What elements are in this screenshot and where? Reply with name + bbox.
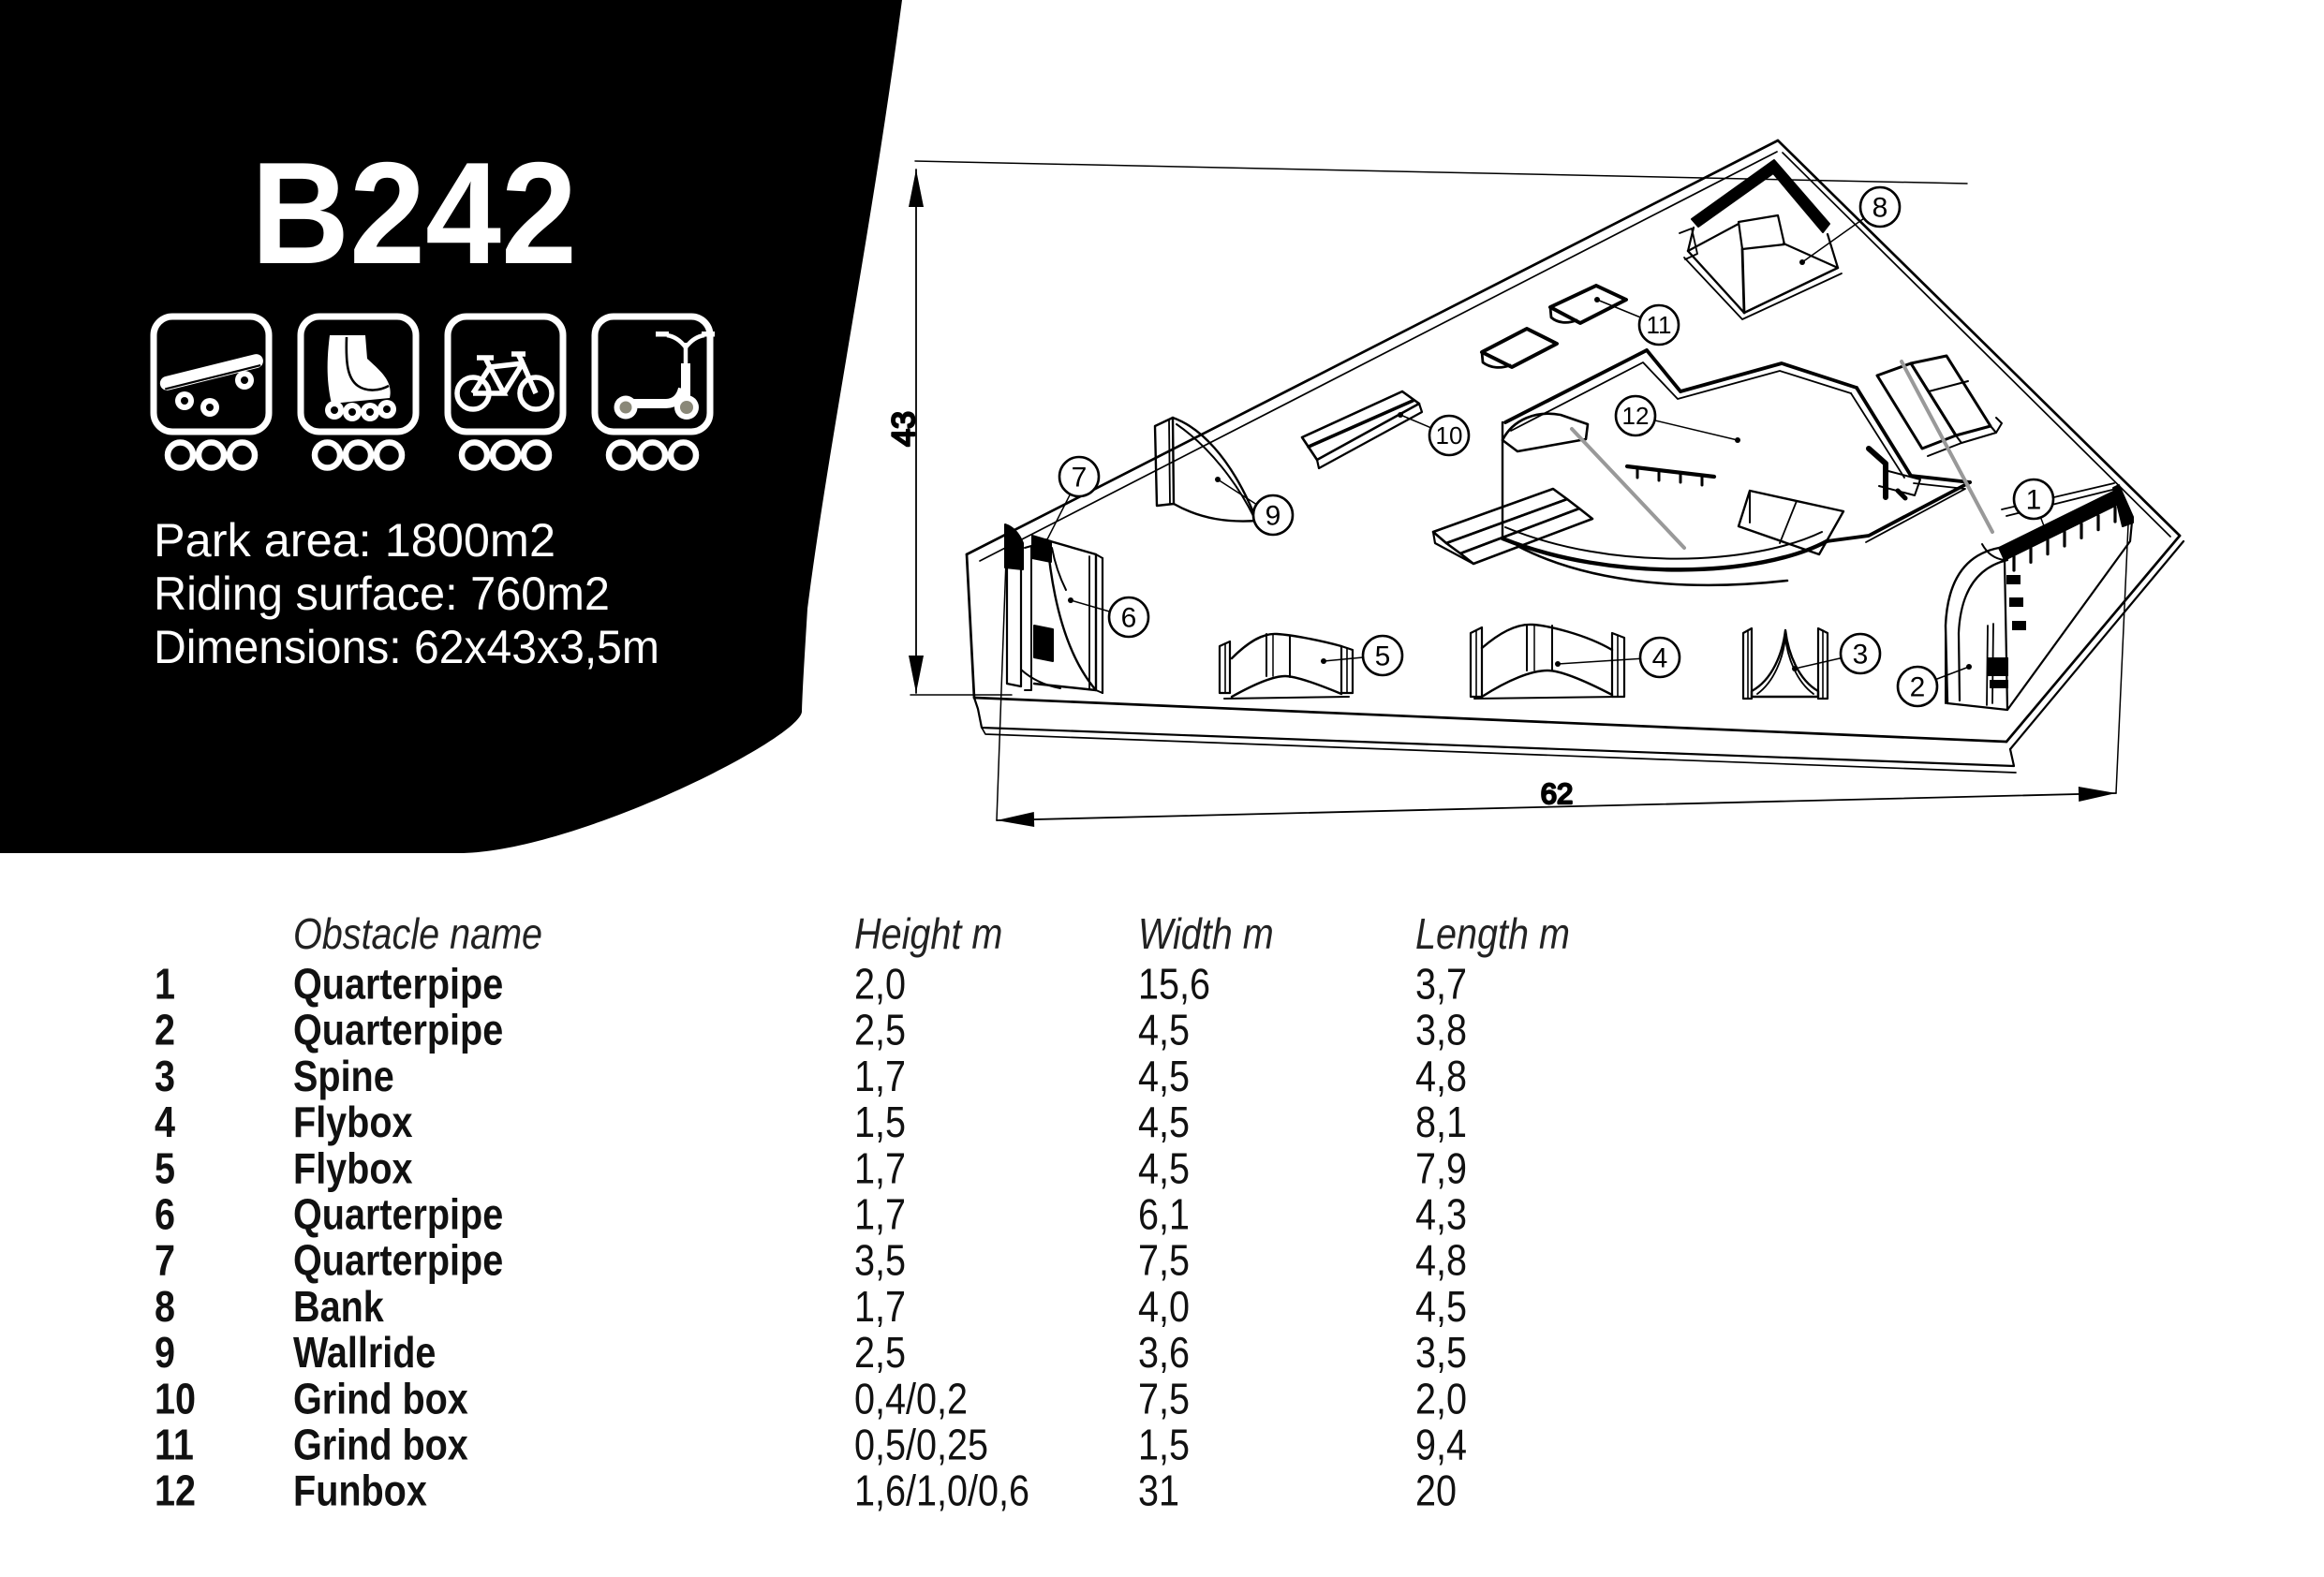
svg-text:Park area: 1800m2: Park area: 1800m2: [154, 514, 555, 567]
svg-text:4: 4: [155, 1098, 175, 1146]
svg-text:Grind box: Grind box: [293, 1422, 468, 1469]
svg-text:6,1: 6,1: [1138, 1191, 1190, 1239]
svg-text:4,8: 4,8: [1415, 1053, 1467, 1100]
svg-text:3,6: 3,6: [1138, 1329, 1190, 1377]
svg-text:1,7: 1,7: [854, 1145, 906, 1193]
svg-text:3,8: 3,8: [1415, 1007, 1467, 1054]
svg-text:4,5: 4,5: [1415, 1283, 1467, 1331]
svg-text:9: 9: [1266, 501, 1281, 532]
svg-text:7,9: 7,9: [1415, 1145, 1467, 1193]
svg-text:7,5: 7,5: [1138, 1237, 1190, 1285]
svg-text:2,0: 2,0: [854, 961, 906, 1009]
svg-text:20: 20: [1415, 1467, 1457, 1515]
svg-text:2,5: 2,5: [854, 1007, 906, 1054]
svg-text:4,5: 4,5: [1138, 1145, 1190, 1193]
svg-text:15,6: 15,6: [1138, 961, 1210, 1009]
svg-text:9: 9: [155, 1329, 175, 1377]
svg-text:Flybox: Flybox: [293, 1145, 413, 1193]
svg-text:5: 5: [1375, 641, 1391, 672]
svg-text:Dimensions: 62x43x3,5m: Dimensions: 62x43x3,5m: [154, 621, 659, 673]
svg-text:8: 8: [155, 1283, 175, 1331]
svg-text:1,5: 1,5: [854, 1098, 906, 1146]
svg-text:Quarterpipe: Quarterpipe: [293, 1191, 503, 1239]
svg-text:3,5: 3,5: [854, 1237, 906, 1285]
svg-text:Bank: Bank: [293, 1283, 384, 1331]
svg-text:9,4: 9,4: [1415, 1422, 1467, 1469]
svg-text:Funbox: Funbox: [293, 1467, 427, 1515]
svg-text:10: 10: [1436, 421, 1463, 450]
svg-text:7: 7: [1072, 463, 1088, 494]
svg-text:4,3: 4,3: [1415, 1191, 1467, 1239]
svg-text:1,6/1,0/0,6: 1,6/1,0/0,6: [854, 1467, 1029, 1515]
svg-text:Riding surface: 760m2: Riding surface: 760m2: [154, 567, 610, 620]
svg-text:31: 31: [1138, 1467, 1179, 1515]
svg-text:4: 4: [1652, 643, 1668, 674]
svg-text:6: 6: [155, 1191, 175, 1239]
svg-text:11: 11: [1647, 311, 1672, 339]
svg-text:Grind box: Grind box: [293, 1376, 468, 1423]
svg-text:1,7: 1,7: [854, 1053, 906, 1100]
svg-text:Width m: Width m: [1138, 910, 1274, 958]
svg-text:4,8: 4,8: [1415, 1237, 1467, 1285]
svg-text:Quarterpipe: Quarterpipe: [293, 1237, 503, 1285]
svg-text:Spine: Spine: [293, 1053, 394, 1100]
svg-text:Flybox: Flybox: [293, 1098, 413, 1146]
svg-text:3,5: 3,5: [1415, 1329, 1467, 1377]
svg-text:62: 62: [1541, 777, 1573, 810]
svg-text:8: 8: [1873, 193, 1888, 224]
svg-text:0,4/0,2: 0,4/0,2: [854, 1376, 968, 1423]
svg-text:Length m: Length m: [1415, 910, 1570, 958]
svg-text:12: 12: [1622, 402, 1650, 430]
svg-text:Quarterpipe: Quarterpipe: [293, 1007, 503, 1054]
svg-text:10: 10: [155, 1376, 196, 1423]
svg-text:0,5/0,25: 0,5/0,25: [854, 1422, 988, 1469]
svg-text:2,0: 2,0: [1415, 1376, 1467, 1423]
svg-text:Obstacle name: Obstacle name: [293, 910, 542, 958]
svg-text:1,5: 1,5: [1138, 1422, 1190, 1469]
svg-text:2,5: 2,5: [854, 1329, 906, 1377]
svg-text:Quarterpipe: Quarterpipe: [293, 961, 503, 1009]
svg-text:11: 11: [155, 1422, 194, 1469]
svg-text:1: 1: [155, 961, 175, 1009]
svg-text:7,5: 7,5: [1138, 1376, 1190, 1423]
svg-text:8,1: 8,1: [1415, 1098, 1467, 1146]
svg-text:1: 1: [2026, 485, 2042, 516]
svg-text:Wallride: Wallride: [293, 1329, 436, 1377]
svg-text:6: 6: [1121, 603, 1137, 634]
svg-text:4,5: 4,5: [1138, 1053, 1190, 1100]
svg-text:1,7: 1,7: [854, 1191, 906, 1239]
svg-text:7: 7: [155, 1237, 175, 1285]
svg-text:4,0: 4,0: [1138, 1283, 1190, 1331]
svg-text:3,7: 3,7: [1415, 961, 1467, 1009]
svg-text:5: 5: [155, 1145, 175, 1193]
svg-text:12: 12: [155, 1467, 196, 1515]
svg-text:2: 2: [1910, 672, 1926, 703]
svg-text:Height m: Height m: [854, 910, 1002, 958]
svg-text:4,5: 4,5: [1138, 1098, 1190, 1146]
svg-text:43: 43: [886, 411, 922, 447]
svg-text:2: 2: [155, 1007, 175, 1054]
svg-text:3: 3: [155, 1053, 175, 1100]
svg-text:4,5: 4,5: [1138, 1007, 1190, 1054]
svg-text:3: 3: [1853, 640, 1869, 671]
svg-text:B242: B242: [251, 132, 577, 294]
svg-text:1,7: 1,7: [854, 1283, 906, 1331]
